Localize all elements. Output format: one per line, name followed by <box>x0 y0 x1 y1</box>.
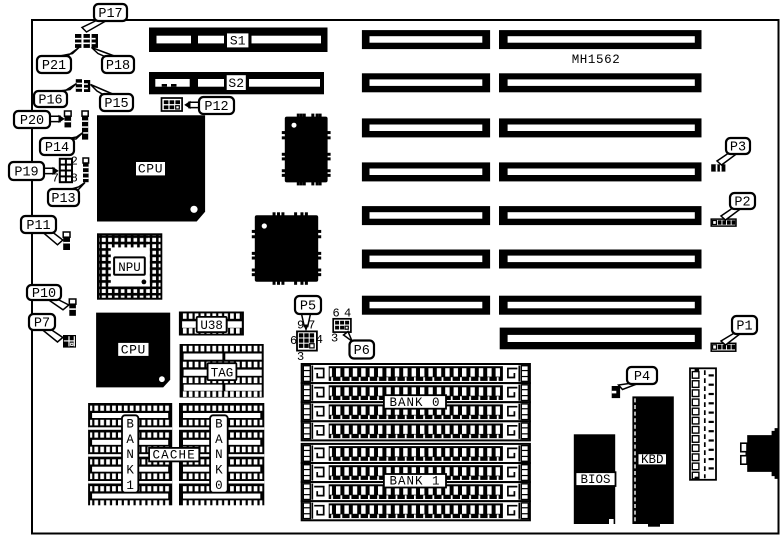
svg-text:U38: U38 <box>200 319 223 333</box>
svg-text:P5: P5 <box>300 300 316 315</box>
svg-text:BANK 0: BANK 0 <box>389 396 440 410</box>
svg-text:CPU: CPU <box>138 162 163 177</box>
svg-text:B: B <box>126 418 134 432</box>
svg-text:BANK 1: BANK 1 <box>389 475 440 489</box>
svg-text:P20: P20 <box>20 114 44 129</box>
svg-text:KBD: KBD <box>641 453 664 467</box>
svg-text:8: 8 <box>71 172 78 186</box>
svg-text:4: 4 <box>316 333 323 347</box>
svg-text:P13: P13 <box>51 192 75 207</box>
svg-text:2: 2 <box>71 155 78 169</box>
svg-text:CACHE: CACHE <box>152 449 196 463</box>
svg-text:P2: P2 <box>734 196 750 211</box>
svg-text:A: A <box>215 433 223 447</box>
svg-text:P19: P19 <box>14 166 38 181</box>
svg-text:4: 4 <box>344 306 351 320</box>
svg-text:TAG: TAG <box>211 366 234 380</box>
svg-text:P11: P11 <box>26 219 50 234</box>
svg-text:N: N <box>215 448 223 462</box>
svg-text:P16: P16 <box>38 94 62 109</box>
svg-text:MH1562: MH1562 <box>572 53 621 67</box>
svg-text:P12: P12 <box>204 100 228 115</box>
svg-text:K: K <box>126 463 134 477</box>
svg-text:B: B <box>215 418 223 432</box>
svg-text:P6: P6 <box>354 344 370 359</box>
svg-text:P1: P1 <box>736 320 752 335</box>
svg-text:P18: P18 <box>106 59 130 74</box>
svg-text:NPU: NPU <box>118 261 141 275</box>
svg-text:K: K <box>215 463 223 477</box>
svg-text:BIOS: BIOS <box>580 473 610 487</box>
svg-text:P14: P14 <box>45 141 69 156</box>
svg-text:6: 6 <box>290 334 297 348</box>
svg-text:3: 3 <box>331 332 338 346</box>
svg-text:P17: P17 <box>98 7 122 22</box>
svg-text:S1: S1 <box>230 34 246 49</box>
svg-text:P7: P7 <box>34 317 50 332</box>
svg-text:P10: P10 <box>32 287 56 302</box>
svg-text:0: 0 <box>215 479 223 493</box>
svg-text:A: A <box>126 433 134 447</box>
svg-text:P4: P4 <box>634 370 650 385</box>
svg-text:P21: P21 <box>42 59 66 74</box>
svg-text:6: 6 <box>332 306 339 320</box>
svg-text:N: N <box>126 448 134 462</box>
svg-text:S2: S2 <box>228 76 244 91</box>
svg-text:P15: P15 <box>104 97 128 112</box>
svg-text:3: 3 <box>297 350 304 364</box>
svg-text:1: 1 <box>126 479 134 493</box>
svg-text:P3: P3 <box>730 141 746 156</box>
svg-text:CPU: CPU <box>121 342 146 357</box>
